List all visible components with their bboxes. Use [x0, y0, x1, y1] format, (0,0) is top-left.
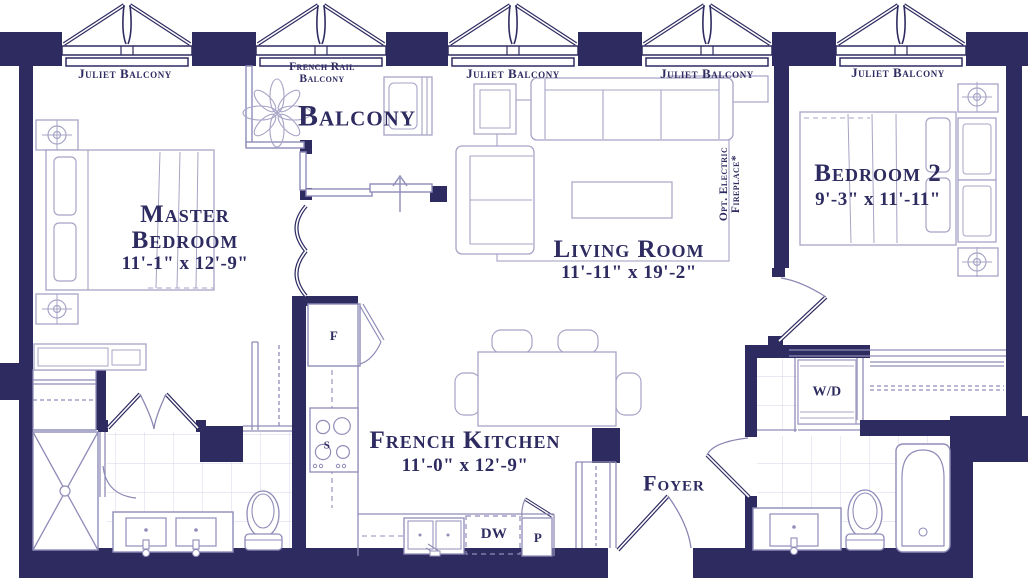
bedroom2-label: Bedroom 2: [814, 161, 941, 187]
dining-chair: [558, 330, 598, 353]
dining-furniture: [455, 330, 641, 426]
bath2-closet-tile: [757, 358, 797, 430]
balcony-label: Balcony: [298, 100, 416, 131]
bedroom2-dims: 9'-3" x 11'-11": [815, 190, 941, 210]
juliet-balcony-label-3: Juliet Balcony: [660, 67, 754, 81]
kitchen-dims: 11'-0" x 12'-9": [402, 456, 529, 476]
juliet-balcony-label-4: Juliet Balcony: [851, 66, 945, 80]
fridge-label: F: [330, 329, 338, 343]
dishwasher-label: DW: [481, 527, 507, 543]
dining-chair: [616, 373, 641, 415]
dining-table: [478, 352, 616, 426]
kitchen-label: French Kitchen: [370, 428, 561, 454]
chest: [958, 180, 996, 242]
balcony-entry-arrow: [393, 176, 407, 212]
dining-chair: [492, 330, 532, 353]
chest: [958, 118, 996, 180]
dining-chair: [455, 373, 480, 415]
coffee-table: [572, 182, 672, 218]
living-room-label: Living Room: [554, 237, 705, 263]
fireplace-note: Opt. Electric Fireplace*: [719, 147, 743, 221]
sofa: [531, 78, 733, 140]
stove: [310, 408, 358, 472]
master-bedroom-label: Master Bedroom: [132, 202, 239, 254]
juliet-balcony-label-1: Juliet Balcony: [78, 67, 172, 81]
master-bedroom-dims: 11'-1" x 12'-9": [122, 254, 249, 274]
stove-label: S: [324, 440, 330, 451]
living-room-dims: 11'-11" x 19'-2": [561, 263, 697, 283]
foyer-label: Foyer: [643, 473, 705, 496]
french-rail-line2: Balcony: [289, 74, 355, 86]
floor-plan: Juliet Balcony French Rail Balcony Julie…: [0, 0, 1028, 578]
pantry-label: P: [534, 531, 542, 545]
french-rail-balcony-label: French Rail Balcony: [289, 62, 355, 86]
washer-dryer-label: W/D: [813, 386, 842, 401]
juliet-balcony-label-2: Juliet Balcony: [466, 67, 560, 81]
floor-plan-drawing: [0, 0, 1028, 578]
